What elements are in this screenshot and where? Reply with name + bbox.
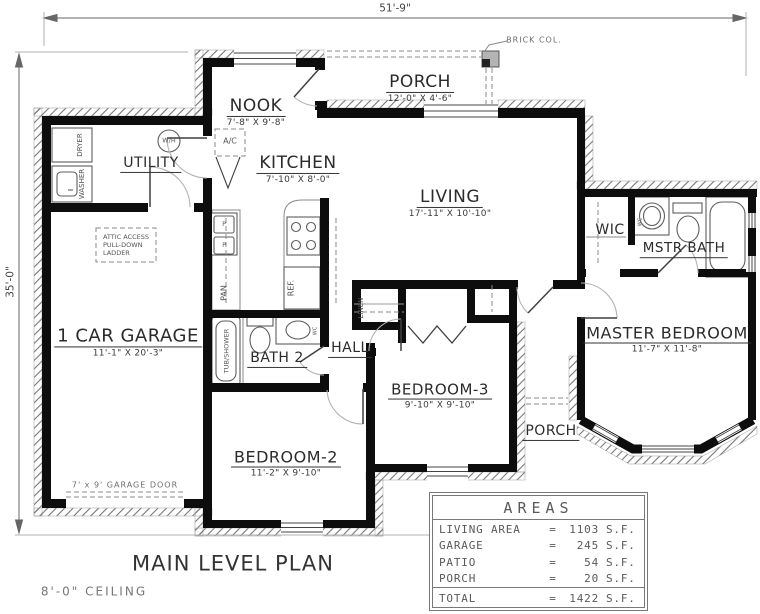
master-bedroom-name: MASTER BEDROOM (583, 325, 751, 344)
utility-name: UTILITY (120, 156, 181, 173)
brick-col-leader (484, 41, 507, 52)
master-bedroom-size: 11'-7" X 11'-8" (583, 346, 751, 356)
washer-label: WASHER (79, 169, 87, 199)
garage-size: 11'-1" X 20'-3" (54, 350, 202, 360)
master-side-window (746, 256, 758, 272)
areas-table-rows: LIVING AREA = 1103 S.F. GARAGE = 245 S.F… (433, 520, 644, 587)
ceiling-note: 8'-0" CEILING (41, 586, 147, 599)
bedroom3-name: BEDROOM-3 (388, 382, 492, 400)
sink-p-right: P (222, 242, 226, 248)
master-door-arc (581, 283, 617, 318)
wc-mstr-label: WC (638, 218, 643, 226)
room-label-bedroom3: BEDROOM-3 9'-10" X 9'-10" (388, 381, 492, 412)
room-label-porch-front: PORCH 12'-0" X 4'-6" (386, 73, 454, 105)
living-name: LIVING (417, 188, 483, 208)
porch-front-name: PORCH (386, 73, 454, 93)
areas-row-total: TOTAL = 1422 S.F. (433, 587, 644, 607)
front-door-arc (294, 97, 317, 106)
brick-col-note: BRICK COL. (506, 37, 562, 46)
room-label-wic: WIC (595, 220, 624, 238)
floor-plan: 51'-9" 35'-0" BRICK COL. PORCH 12'-0" X … (0, 0, 760, 614)
room-label-kitchen: KITCHEN 7'-10" X 8'-0" (256, 154, 339, 186)
room-label-hall: HALL (328, 338, 372, 358)
room-label-bedroom2: BEDROOM-2 11'-2" X 9'-10" (231, 449, 341, 480)
stove (287, 217, 320, 255)
bedroom3-window (427, 463, 468, 481)
hall-name: HALL (328, 341, 372, 358)
room-label-utility: UTILITY (120, 153, 181, 173)
passage-door-leaf (528, 287, 553, 313)
areas-table: AREAS LIVING AREA = 1103 S.F. GARAGE = 2… (429, 492, 648, 611)
areas-table-title: AREAS (433, 496, 644, 520)
dryer-label: DRYER (77, 133, 85, 156)
refrigerator-label: REF. (288, 280, 297, 296)
areas-row-garage: GARAGE = 245 S.F. (439, 539, 638, 552)
water-heater-label: W/H (162, 137, 176, 144)
areas-row-porch: PORCH = 20 S.F. (439, 572, 638, 585)
bedroom2-door-arc (327, 390, 363, 424)
room-label-porch-rear: PORCH (522, 421, 579, 441)
porch-front-size: 12'-0" X 4'-6" (386, 95, 454, 105)
areas-row-living: LIVING AREA = 1103 S.F. (439, 523, 638, 536)
mstr-bath-vanity (633, 197, 669, 235)
tub-shower-label: TUB/SHOWER (223, 329, 230, 374)
garage-door-note: 7' x 9' GARAGE DOOR (72, 482, 178, 491)
nook-size: 7'-8" X 9'-8" (227, 119, 286, 129)
room-label-bath2: BATH 2 (247, 348, 307, 368)
plan-title: MAIN LEVEL PLAN (132, 553, 334, 576)
porch-rear-name: PORCH (522, 424, 579, 441)
overall-depth-dimension: 35'-0" (5, 266, 16, 298)
bay-bottom-window (642, 444, 694, 454)
attic-access-note: ATTIC ACCESS PULL-DOWN LADDER (103, 233, 149, 257)
bath2-name: BATH 2 (247, 351, 307, 368)
kitchen-size: 7'-10" X 8'-0" (256, 176, 339, 186)
living-size: 17'-11" X 10'-10" (409, 210, 492, 220)
room-label-garage: 1 CAR GARAGE 11'-1" X 20'-3" (54, 326, 202, 359)
bedroom2-size: 11'-2" X 9'-10" (231, 470, 341, 480)
passage-door-arc (517, 287, 528, 313)
bedroom3-size: 9'-10" X 9'-10" (388, 402, 492, 412)
kitchen-name: KITCHEN (256, 154, 339, 174)
nook-window (234, 49, 296, 68)
mstr-bath-toilet (673, 203, 702, 242)
room-label-mstr-bath: MSTR BATH (640, 238, 728, 258)
mstr-bath-tub (706, 197, 749, 277)
nook-name: NOOK (227, 97, 286, 117)
wic-name: WIC (595, 223, 624, 238)
bifold-closet-doors (408, 326, 466, 343)
wc-bath2-label: WC (313, 327, 318, 335)
ac-label: A/C (223, 138, 237, 147)
mstr-bath-window (746, 213, 758, 228)
bedroom2-name: BEDROOM-2 (231, 449, 341, 468)
front-door-leaf (294, 69, 319, 97)
sink-p-left: P (222, 221, 226, 227)
linen-label: LINEN (358, 298, 366, 319)
room-label-living: LIVING 17'-11" X 10'-10" (409, 188, 492, 220)
room-label-nook: NOOK 7'-8" X 9'-8" (227, 97, 286, 129)
mstr-bath-name: MSTR BATH (640, 241, 728, 258)
dryer-appliance (52, 128, 92, 162)
room-label-master-bedroom: MASTER BEDROOM 11'-7" X 11'-8" (583, 325, 751, 356)
pantry-label: PAN (221, 285, 230, 301)
ac-door-wedge (216, 157, 240, 188)
areas-row-patio: PATIO = 54 S.F. (439, 556, 638, 569)
overall-width-dimension: 51'-9" (379, 3, 411, 14)
garage-name: 1 CAR GARAGE (54, 326, 202, 347)
bedroom2-window (281, 519, 323, 537)
brick-column (482, 41, 507, 67)
